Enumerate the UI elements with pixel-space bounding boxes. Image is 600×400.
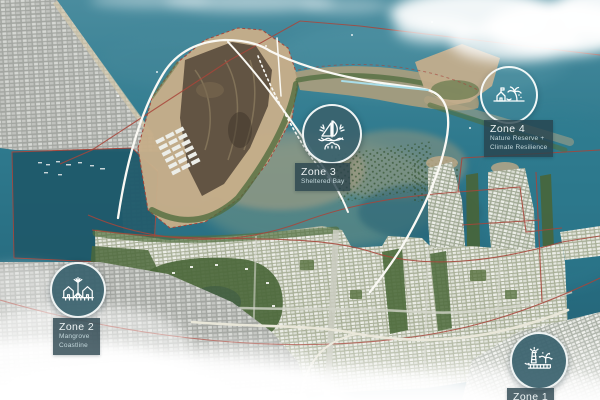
zone-4-subtitle-line-1: Nature Reserve + — [490, 135, 547, 144]
zone-4-circle[interactable] — [480, 66, 538, 124]
zone-1-circle[interactable] — [510, 332, 568, 390]
zone-3-circle[interactable] — [302, 104, 362, 164]
hut-palm-tree-icon — [489, 75, 529, 115]
zone-4-marker[interactable]: Zone 4 Nature Reserve + Climate Resilien… — [480, 66, 538, 124]
sailboat-icon — [312, 114, 352, 154]
zone-2-subtitle-line-1: Mangrove — [59, 333, 94, 342]
zone-2-label: Zone 2 Mangrove Coastline — [53, 318, 100, 355]
zone-4-title: Zone 4 — [490, 123, 547, 135]
masterplan-map: Zone 3 Sheltered Bay Zone 4 Nature Reser… — [0, 0, 600, 400]
zone-3-label: Zone 3 Sheltered Bay — [295, 163, 350, 191]
zone-4-subtitle-line-2: Climate Resilience — [490, 144, 547, 153]
zone-2-title: Zone 2 — [59, 321, 94, 333]
zone-4-label: Zone 4 Nature Reserve + Climate Resilien… — [484, 120, 553, 157]
mangrove-houses-icon — [59, 271, 97, 309]
lighthouse-tree-icon — [520, 342, 558, 380]
zone-2-subtitle-line-2: Coastline — [59, 342, 94, 351]
zone-2-circle[interactable] — [50, 262, 106, 318]
zone-3-title: Zone 3 — [301, 166, 344, 178]
zone-2-marker[interactable]: Zone 2 Mangrove Coastline — [50, 262, 106, 318]
zone-3-subtitle: Sheltered Bay — [301, 178, 344, 187]
zone-1-marker[interactable]: Zone 1 — [510, 332, 568, 390]
zone-1-title: Zone 1 — [513, 391, 548, 400]
zone-3-marker[interactable]: Zone 3 Sheltered Bay — [302, 104, 362, 164]
zone-1-label: Zone 1 — [507, 388, 554, 400]
